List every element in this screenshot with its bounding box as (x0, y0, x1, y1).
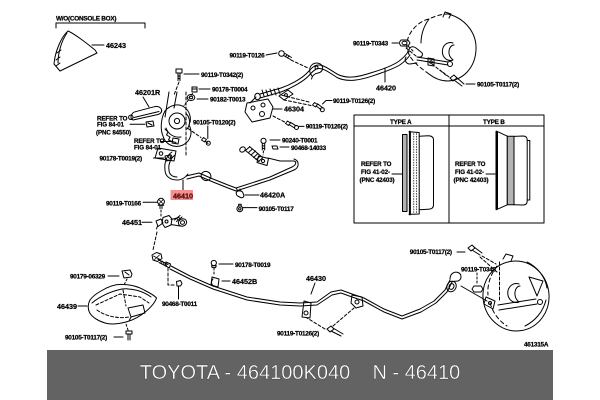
svg-text:90178-T0019(2): 90178-T0019(2) (100, 156, 142, 163)
svg-text:TOYOTA - 464100K040 N - 464: TOYOTA - 464100K040 N - 46410 (140, 362, 461, 384)
svg-text:90119-T0126(2): 90119-T0126(2) (306, 124, 348, 131)
svg-text:46451: 46451 (122, 218, 142, 227)
svg-text:90105-T0117: 90105-T0117 (259, 206, 295, 213)
svg-text:90119-T0343: 90119-T0343 (461, 267, 497, 274)
svg-text:90468-14033: 90468-14033 (291, 145, 327, 152)
svg-text:TYPE A: TYPE A (390, 119, 412, 126)
svg-text:FIG 84-01: FIG 84-01 (97, 122, 125, 129)
svg-text:90179-06329: 90179-06329 (70, 274, 106, 281)
svg-text:461315A: 461315A (524, 342, 549, 349)
svg-text:90119-T0126(2): 90119-T0126(2) (333, 98, 375, 105)
svg-text:90468-T0011: 90468-T0011 (162, 301, 198, 308)
svg-text:TYPE B: TYPE B (483, 119, 505, 126)
svg-text:W/O(CONSOLE BOX): W/O(CONSOLE BOX) (56, 16, 116, 23)
svg-text:46430: 46430 (306, 274, 326, 283)
svg-text:90119-T0126(2): 90119-T0126(2) (277, 331, 319, 338)
svg-text:90105-T0117(2): 90105-T0117(2) (477, 82, 519, 89)
svg-text:(PNC 84550): (PNC 84550) (96, 130, 131, 137)
svg-text:(PNC 42403): (PNC 42403) (360, 177, 395, 184)
svg-text:FIG 41-02-: FIG 41-02- (361, 169, 390, 176)
svg-text:46410: 46410 (173, 191, 193, 200)
svg-text:46439: 46439 (57, 302, 77, 311)
svg-text:REFER TO: REFER TO (455, 161, 486, 168)
svg-text:(PNC 42403): (PNC 42403) (454, 177, 489, 184)
svg-text:90105-T0120(2): 90105-T0120(2) (193, 120, 235, 127)
svg-text:FIG 84-01: FIG 84-01 (134, 144, 162, 151)
svg-text:90119-T0342(2): 90119-T0342(2) (201, 72, 243, 79)
svg-text:90119-T0343: 90119-T0343 (353, 41, 389, 48)
svg-text:46243: 46243 (106, 41, 126, 50)
svg-text:90105-T0117(2): 90105-T0117(2) (410, 249, 452, 256)
svg-text:90119-T0126: 90119-T0126 (230, 52, 266, 59)
svg-text:90178-T0019: 90178-T0019 (235, 262, 271, 269)
svg-text:46452B: 46452B (232, 277, 257, 286)
svg-text:90119-T0166: 90119-T0166 (106, 201, 142, 208)
svg-text:90105-T0117(2): 90105-T0117(2) (65, 335, 107, 342)
svg-text:90178-T0004: 90178-T0004 (212, 87, 248, 94)
svg-text:46420A: 46420A (260, 191, 285, 200)
svg-text:90240-T0001: 90240-T0001 (282, 138, 318, 145)
svg-text:46201R: 46201R (135, 88, 161, 97)
svg-text:46304: 46304 (284, 105, 304, 114)
svg-text:90182-T0013: 90182-T0013 (210, 97, 246, 104)
svg-text:46420: 46420 (376, 84, 396, 93)
svg-text:REFER TO: REFER TO (361, 161, 392, 168)
svg-text:FIG 41-02-: FIG 41-02- (455, 169, 484, 176)
